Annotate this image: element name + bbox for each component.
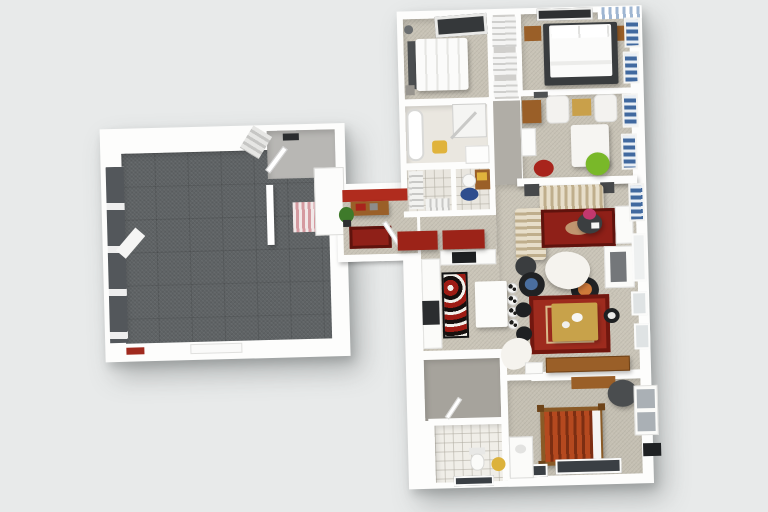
bedroom3-bedpost-2 xyxy=(598,403,605,410)
floorplan-3d-render xyxy=(0,0,768,512)
bathroom2-south-window xyxy=(454,475,494,486)
pantry-shelf-vertical xyxy=(409,171,424,209)
floorplan-stage xyxy=(0,0,768,512)
entry-bench-red-2 xyxy=(442,229,484,249)
garage-striped-shelf xyxy=(293,202,318,233)
garage-south-door xyxy=(190,343,242,354)
study-west-shelf xyxy=(521,128,537,156)
bedroom3-south-window-2 xyxy=(555,458,621,475)
wc-towels-yellow xyxy=(477,172,487,180)
bedroom3-wardrobe-door-1 xyxy=(637,389,655,408)
bath-stool-yellow xyxy=(432,140,447,153)
console-decor-gray xyxy=(370,203,378,210)
bedroom3-bedpost-1 xyxy=(537,405,544,412)
bedroom2-stool xyxy=(406,85,415,95)
closet-shelf-mid xyxy=(493,52,518,75)
media-console-panel xyxy=(610,252,627,282)
living-side-table-west xyxy=(524,184,539,196)
garage-cabinet xyxy=(314,167,346,236)
master-window-top xyxy=(537,7,593,20)
kitchen-island xyxy=(475,281,508,328)
closet-shelf-top xyxy=(492,16,517,47)
entry-bench-red-1 xyxy=(397,231,437,251)
master-east-window-1 xyxy=(624,17,641,47)
bathtub xyxy=(406,109,424,161)
sideboard xyxy=(546,356,630,373)
master-nightstand-left xyxy=(524,26,541,41)
dining-east-window-1 xyxy=(631,291,648,315)
study-side-table xyxy=(572,99,591,116)
master-east-window-2 xyxy=(623,51,640,83)
bottom-hallway-floor xyxy=(424,357,502,421)
kitchen-appliance xyxy=(422,301,440,325)
dining-console-white xyxy=(525,362,543,374)
bedroom2-skylight xyxy=(434,13,487,38)
study-armchair-1 xyxy=(546,95,570,124)
study-armchair-2 xyxy=(594,94,618,123)
closet-shelf-bottom xyxy=(493,80,517,97)
study-east-window-2 xyxy=(621,133,638,169)
bathroom2-vanity xyxy=(509,436,534,479)
kitchen-cooktop xyxy=(452,252,476,264)
garage-entry-wall-tv xyxy=(283,133,299,140)
garage-red-doormat xyxy=(126,347,144,354)
pantry-shelf-horizontal xyxy=(426,198,450,211)
living-east-window-blue xyxy=(628,183,645,221)
kitchen-swirl-rug xyxy=(441,272,469,339)
paper-on-rug xyxy=(591,222,599,228)
center-hall-floor xyxy=(492,100,522,187)
master-bed-pillows xyxy=(551,25,609,39)
study-east-window-1 xyxy=(622,93,639,127)
bath-vanity xyxy=(465,145,489,164)
bedroom3-tv xyxy=(643,443,661,456)
dining-east-window-2 xyxy=(634,323,651,349)
study-dresser xyxy=(522,100,542,123)
dining-table xyxy=(551,302,598,341)
bedroom2-bed xyxy=(415,38,468,91)
bedroom3-duvet xyxy=(544,411,595,462)
bedroom3-wardrobe-door-2 xyxy=(637,412,655,431)
console-decor-red xyxy=(356,203,366,210)
living-east-window-white xyxy=(631,233,646,281)
bedroom3-pillows xyxy=(592,410,601,460)
bathroom2-toilet xyxy=(470,453,484,470)
